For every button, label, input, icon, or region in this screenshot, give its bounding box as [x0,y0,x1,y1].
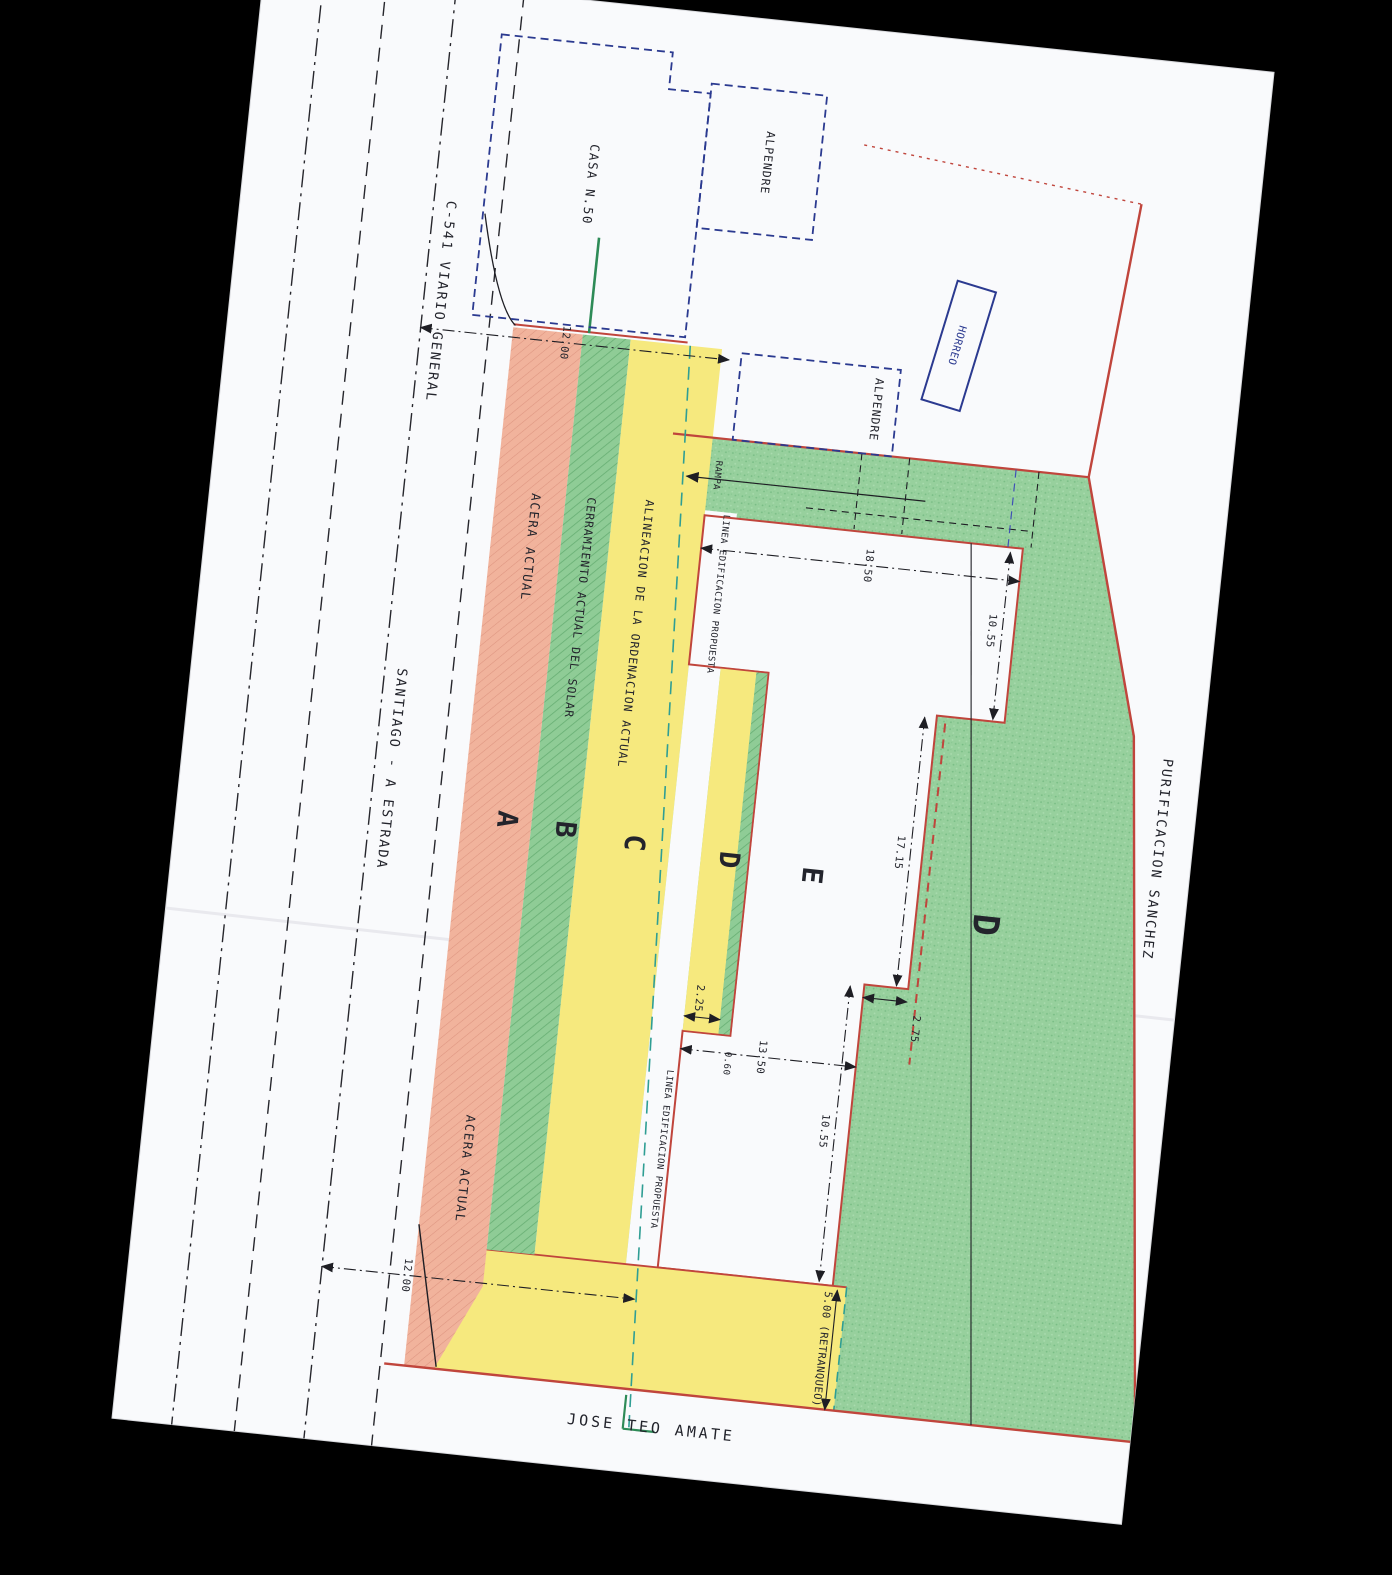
zone-a-letter: A [490,809,525,829]
zone-d-large-letter: D [963,912,1006,938]
site-plan-svg: C-541 VIARIO GENERAL SANTIAGO - A ESTRAD… [0,0,1392,1575]
zone-c-letter: C [617,833,652,853]
zone-b-letter: B [548,819,583,839]
site-plan-scan: C-541 VIARIO GENERAL SANTIAGO - A ESTRAD… [0,0,1392,1575]
zone-d-small-letter: D [712,850,747,870]
scan-rotation-group: C-541 VIARIO GENERAL SANTIAGO - A ESTRAD… [112,0,1279,1525]
zone-e-letter: E [795,865,830,885]
